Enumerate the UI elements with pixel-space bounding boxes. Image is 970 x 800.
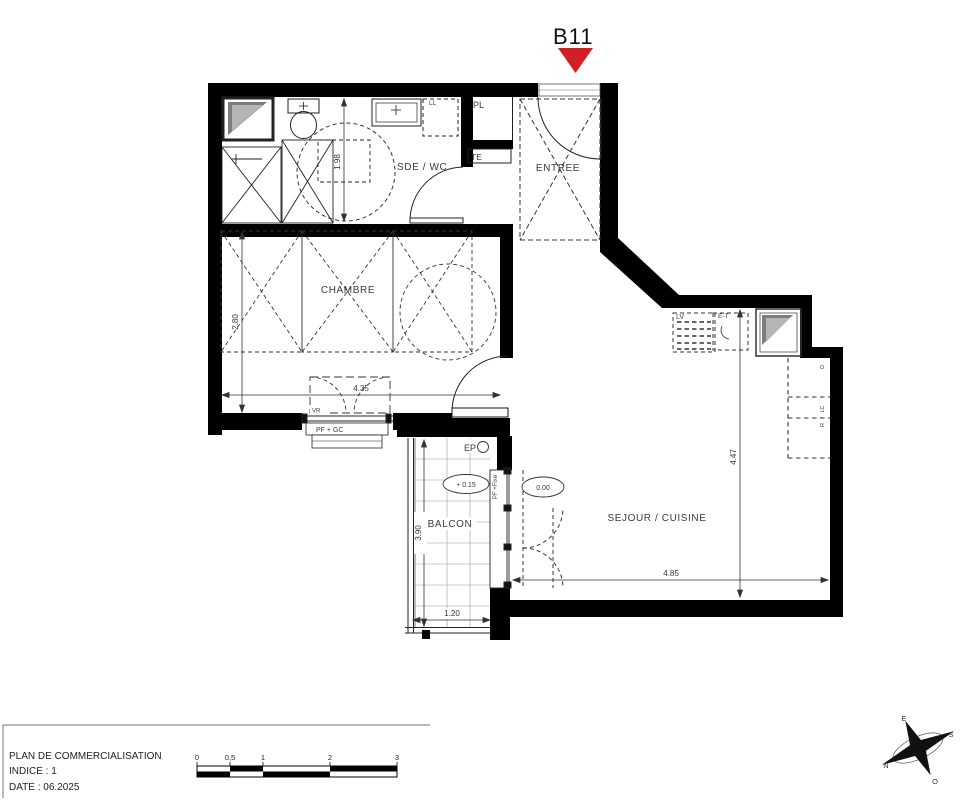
dim-chambre-width: 2.80 bbox=[231, 314, 240, 330]
toilet bbox=[288, 99, 319, 139]
dim-sejour-depth: 4.47 bbox=[729, 449, 738, 465]
compass-rose: N S E O bbox=[869, 704, 967, 792]
chambre-door-leaf bbox=[452, 408, 508, 417]
title-line1: PLAN DE COMMERCIALISATION bbox=[9, 751, 162, 762]
washbasin bbox=[372, 99, 421, 126]
sde-wc-fixtures bbox=[222, 98, 463, 223]
label-window-gc: PF + GC bbox=[316, 427, 343, 434]
label-entree: ENTREE bbox=[536, 163, 580, 174]
title-line2: INDICE : 1 bbox=[9, 766, 57, 777]
unit-arrow-icon bbox=[558, 48, 593, 73]
title-block: PLAN DE COMMERCIALISATION INDICE : 1 DAT… bbox=[3, 725, 430, 798]
chambre-door bbox=[452, 356, 508, 417]
dim-balcon-width: 1.20 bbox=[444, 609, 460, 618]
floor-plan-page: 1.98 2.80 4.35 4.47 4.85 3.90 1.20 + 0.1… bbox=[0, 0, 970, 800]
label-lc: LC bbox=[820, 405, 826, 412]
label-shutter: VR bbox=[312, 409, 321, 415]
compass-w: O bbox=[932, 777, 938, 786]
label-window-fixed: PF +Fixe bbox=[493, 474, 499, 499]
scale-2: 2 bbox=[328, 753, 332, 762]
unit-label: B11 bbox=[553, 24, 594, 49]
unit-marker: B11 bbox=[553, 24, 594, 73]
label-closet: PL bbox=[473, 100, 484, 110]
compass-e: E bbox=[901, 714, 906, 723]
floor-plan-drawing: 1.98 2.80 4.35 4.47 4.85 3.90 1.20 + 0.1… bbox=[0, 0, 970, 800]
turning-circle-chambre bbox=[400, 264, 496, 360]
scale-1: 1 bbox=[261, 753, 265, 762]
dim-balcon-depth: 3.90 bbox=[414, 525, 423, 541]
label-oven: O bbox=[820, 364, 826, 369]
scale-0: 0 bbox=[195, 753, 199, 762]
label-balcon: BALCON bbox=[428, 519, 473, 530]
sde-door-leaf bbox=[410, 218, 463, 223]
compass-star-icon bbox=[869, 704, 967, 792]
entrance-door bbox=[538, 84, 601, 159]
title-line3: DATE : 06.2025 bbox=[9, 782, 80, 793]
walls bbox=[208, 83, 843, 640]
dim-sde-depth: 1.98 bbox=[333, 154, 342, 170]
room-labels: SDE / WC ENTREE CHAMBRE SEJOUR / CUISINE… bbox=[321, 162, 707, 530]
diagonal-wall bbox=[600, 238, 679, 308]
scale-3: 3 bbox=[395, 753, 399, 762]
label-chambre: CHAMBRE bbox=[321, 285, 375, 296]
label-sde-wc: SDE / WC bbox=[397, 162, 447, 173]
turning-circle bbox=[297, 123, 395, 221]
dim-sejour-width: 4.85 bbox=[663, 569, 679, 578]
dimensions bbox=[222, 99, 828, 626]
label-downpipe: EP bbox=[464, 443, 476, 453]
scale-bar: 0 0,5 1 2 3 bbox=[195, 753, 399, 777]
label-elec-panel: TE bbox=[471, 152, 482, 162]
dim-chambre-length: 4.35 bbox=[353, 384, 369, 393]
compass-n: N bbox=[883, 761, 888, 770]
label-dishwasher: LV bbox=[676, 314, 684, 321]
dimension-labels: 1.98 2.80 4.35 4.47 4.85 3.90 1.20 bbox=[231, 154, 738, 619]
label-fridge: R bbox=[820, 423, 826, 427]
level-interior: 0.00 bbox=[536, 485, 550, 492]
level-balcony: + 0.15 bbox=[456, 482, 476, 489]
scale-05: 0,5 bbox=[225, 753, 235, 762]
downpipe-symbol bbox=[478, 442, 489, 453]
label-sink-hob: E-T bbox=[718, 313, 729, 320]
label-sejour: SEJOUR / CUISINE bbox=[607, 513, 706, 524]
compass-s: S bbox=[948, 730, 953, 739]
label-washer: LL bbox=[429, 100, 437, 107]
